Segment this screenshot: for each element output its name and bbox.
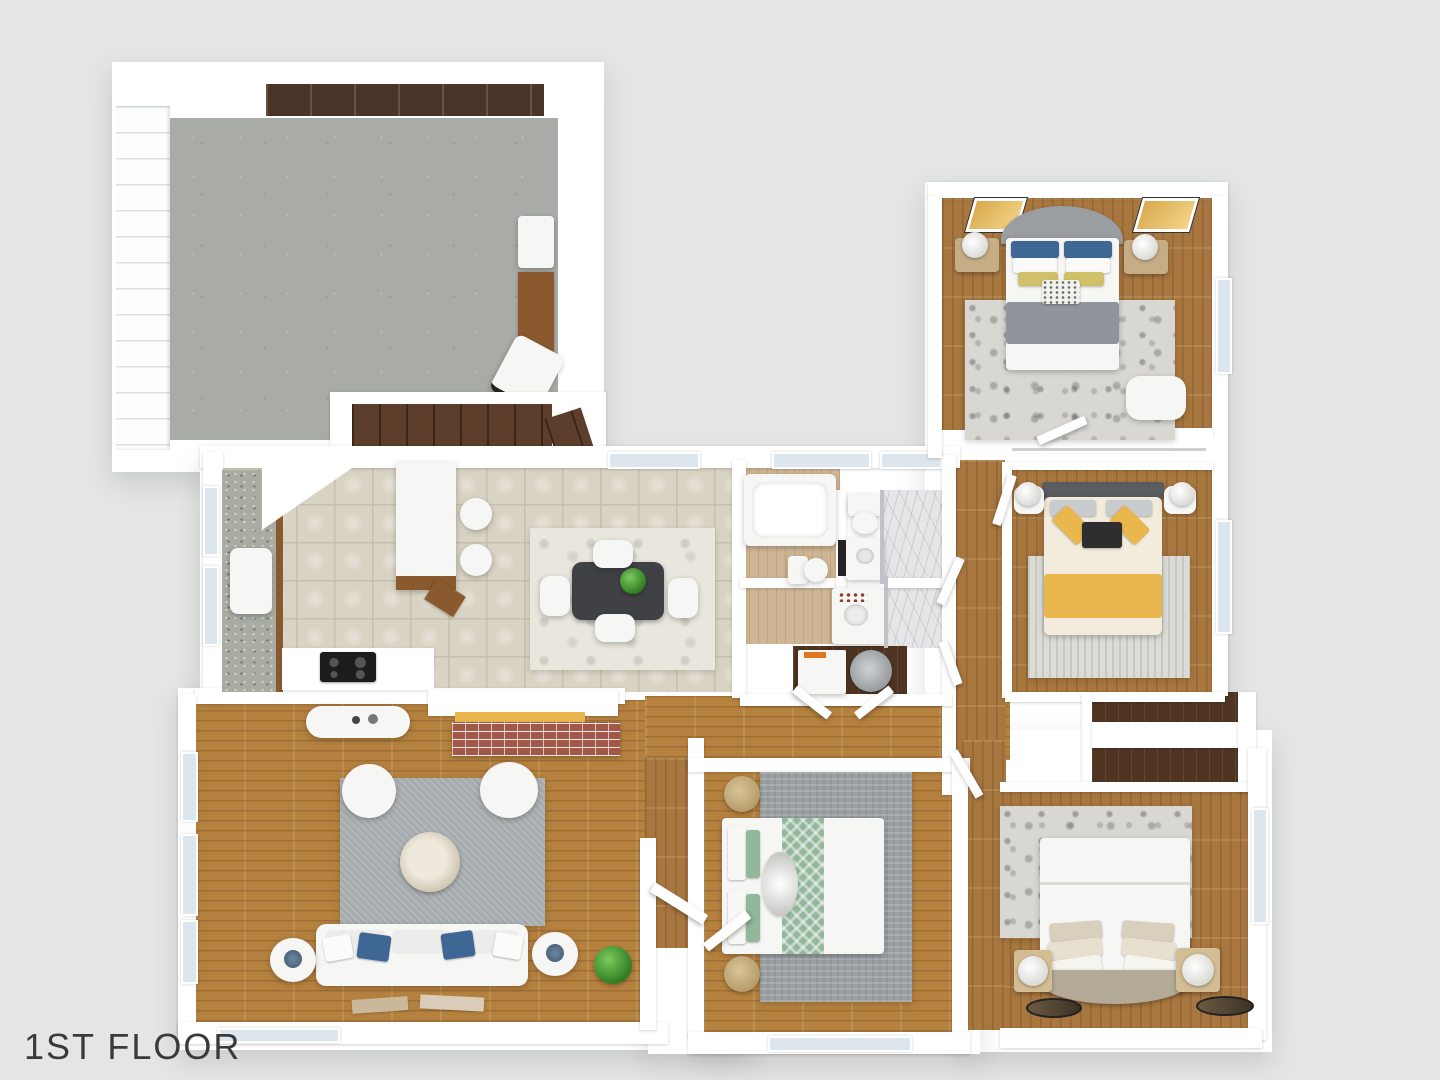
shower1-glass — [880, 490, 884, 584]
bath-bottom-wall — [740, 694, 952, 706]
closet-strip-bottom-wall — [1005, 462, 1213, 470]
armchair-2 — [480, 762, 538, 818]
side-table-lamp-1 — [284, 950, 302, 968]
kitchen-window-1 — [203, 486, 219, 556]
bedroom1-pillow-blue-2 — [1064, 241, 1112, 258]
bedroom4-window — [768, 1036, 912, 1052]
window-top-2 — [772, 452, 871, 469]
bedroom2-lamp-2 — [1170, 482, 1194, 506]
shower1-marble-floor — [880, 490, 950, 584]
armchair-1 — [342, 764, 396, 818]
kitchen-sink — [230, 548, 272, 614]
sofa-pillow-blue-1 — [356, 932, 391, 962]
toilet2-bowl — [804, 558, 828, 582]
floor-label: 1ST FLOOR — [24, 1026, 241, 1068]
dining-chair-east — [668, 578, 698, 618]
bedroom3-floor-mirror-2 — [1196, 996, 1254, 1016]
dining-table-plant — [620, 568, 646, 594]
bedroom3-window — [1252, 808, 1268, 924]
island-stool-1 — [460, 498, 492, 530]
window-top-1 — [608, 452, 700, 469]
vanity1-sink — [856, 548, 874, 564]
living-window-1 — [181, 752, 198, 822]
bedroom1-top-wall — [928, 182, 1228, 198]
bedroom3-duvet-seam — [1040, 882, 1190, 885]
bedroom2-window — [1216, 520, 1232, 634]
bedroom3-floor-mirror-1 — [1026, 998, 1082, 1018]
bedroom1-lamp-1 — [962, 232, 988, 258]
bedroom3-top-wall — [1000, 782, 1260, 792]
shower2-glass — [884, 576, 888, 648]
washer-cable — [804, 652, 826, 658]
living-east-wall — [640, 838, 656, 1030]
bedroom1-art-2 — [1133, 198, 1199, 232]
bedroom4-nightstand-2 — [724, 956, 760, 992]
bedroom4-pillow-green-1 — [746, 830, 760, 878]
dryer-drum — [850, 650, 892, 692]
bedroom1-pillow-white-2 — [1066, 258, 1110, 273]
floorplan-3d-render: 1ST FLOOR — [0, 0, 1440, 1080]
living-window-2 — [181, 834, 198, 916]
dining-chair-west — [540, 576, 570, 616]
bedroom1-pillow-white-1 — [1013, 258, 1057, 273]
bath-mid-wall — [740, 578, 952, 588]
bedroom2-pillow-black — [1082, 522, 1122, 548]
coffee-table — [400, 832, 460, 892]
stove-cooktop — [320, 652, 376, 682]
bedroom2-lamp-1 — [1016, 482, 1040, 506]
garage-storage-shelf — [266, 84, 544, 116]
bar-island-decor — [368, 714, 378, 724]
dining-chair-south — [595, 614, 635, 642]
sofa-pillow-white-2 — [492, 932, 524, 960]
garage-door — [116, 106, 170, 450]
closet2-floor — [1092, 748, 1240, 784]
water-heater — [518, 216, 554, 268]
closet-rail — [1012, 448, 1206, 451]
bedroom2-bottom-wall — [1005, 692, 1225, 702]
bedroom4-left-wall — [688, 738, 704, 1038]
sofa-pillow-white-1 — [322, 934, 354, 962]
bedroom1-lamp-2 — [1132, 234, 1158, 260]
bedroom1-window — [1216, 278, 1232, 374]
island-stool-2 — [460, 544, 492, 576]
bath-right-wall — [942, 455, 956, 795]
living-window-3 — [181, 920, 198, 984]
bedroom1-pillow-accent — [1042, 280, 1080, 304]
bedroom1-armchair — [1126, 376, 1186, 420]
bedroom4-throw-blanket — [762, 852, 798, 916]
bedroom3-bottom-wall — [1000, 1028, 1262, 1048]
toilet1-bowl — [852, 512, 878, 534]
bedroom3-lamp-1 — [1018, 956, 1048, 986]
bathroom2-floor — [740, 586, 838, 644]
living-plant — [594, 946, 632, 984]
bedroom4-nightstand-1 — [724, 776, 760, 812]
closet-divider-wall — [1092, 722, 1240, 748]
bedroom3-lamp-2 — [1182, 954, 1214, 986]
closet-hall-wall — [1082, 692, 1092, 788]
sofa-pillow-blue-2 — [440, 930, 475, 960]
kitchen-window-2 — [203, 566, 219, 646]
bathtub-basin — [752, 482, 828, 538]
side-table-lamp-2 — [546, 944, 564, 962]
bedroom4-right-wall — [952, 758, 968, 1038]
wing-left-wall — [928, 196, 942, 458]
vanity1-mirror — [838, 540, 846, 576]
bedroom2-throw — [1044, 574, 1162, 618]
kitchen-island — [396, 462, 456, 590]
bedroom4-pillow-white-1 — [728, 826, 746, 880]
bedroom1-throw — [1006, 302, 1119, 344]
fireplace-brick — [452, 722, 620, 756]
bedroom4-top-wall — [688, 758, 970, 772]
vanity2-decor — [838, 592, 868, 602]
dining-table — [572, 562, 664, 620]
bar-island-faucet — [352, 716, 360, 724]
dining-chair-north — [593, 540, 633, 568]
bedroom1-pillow-blue-1 — [1011, 241, 1059, 258]
vanity2-sink — [844, 604, 868, 626]
